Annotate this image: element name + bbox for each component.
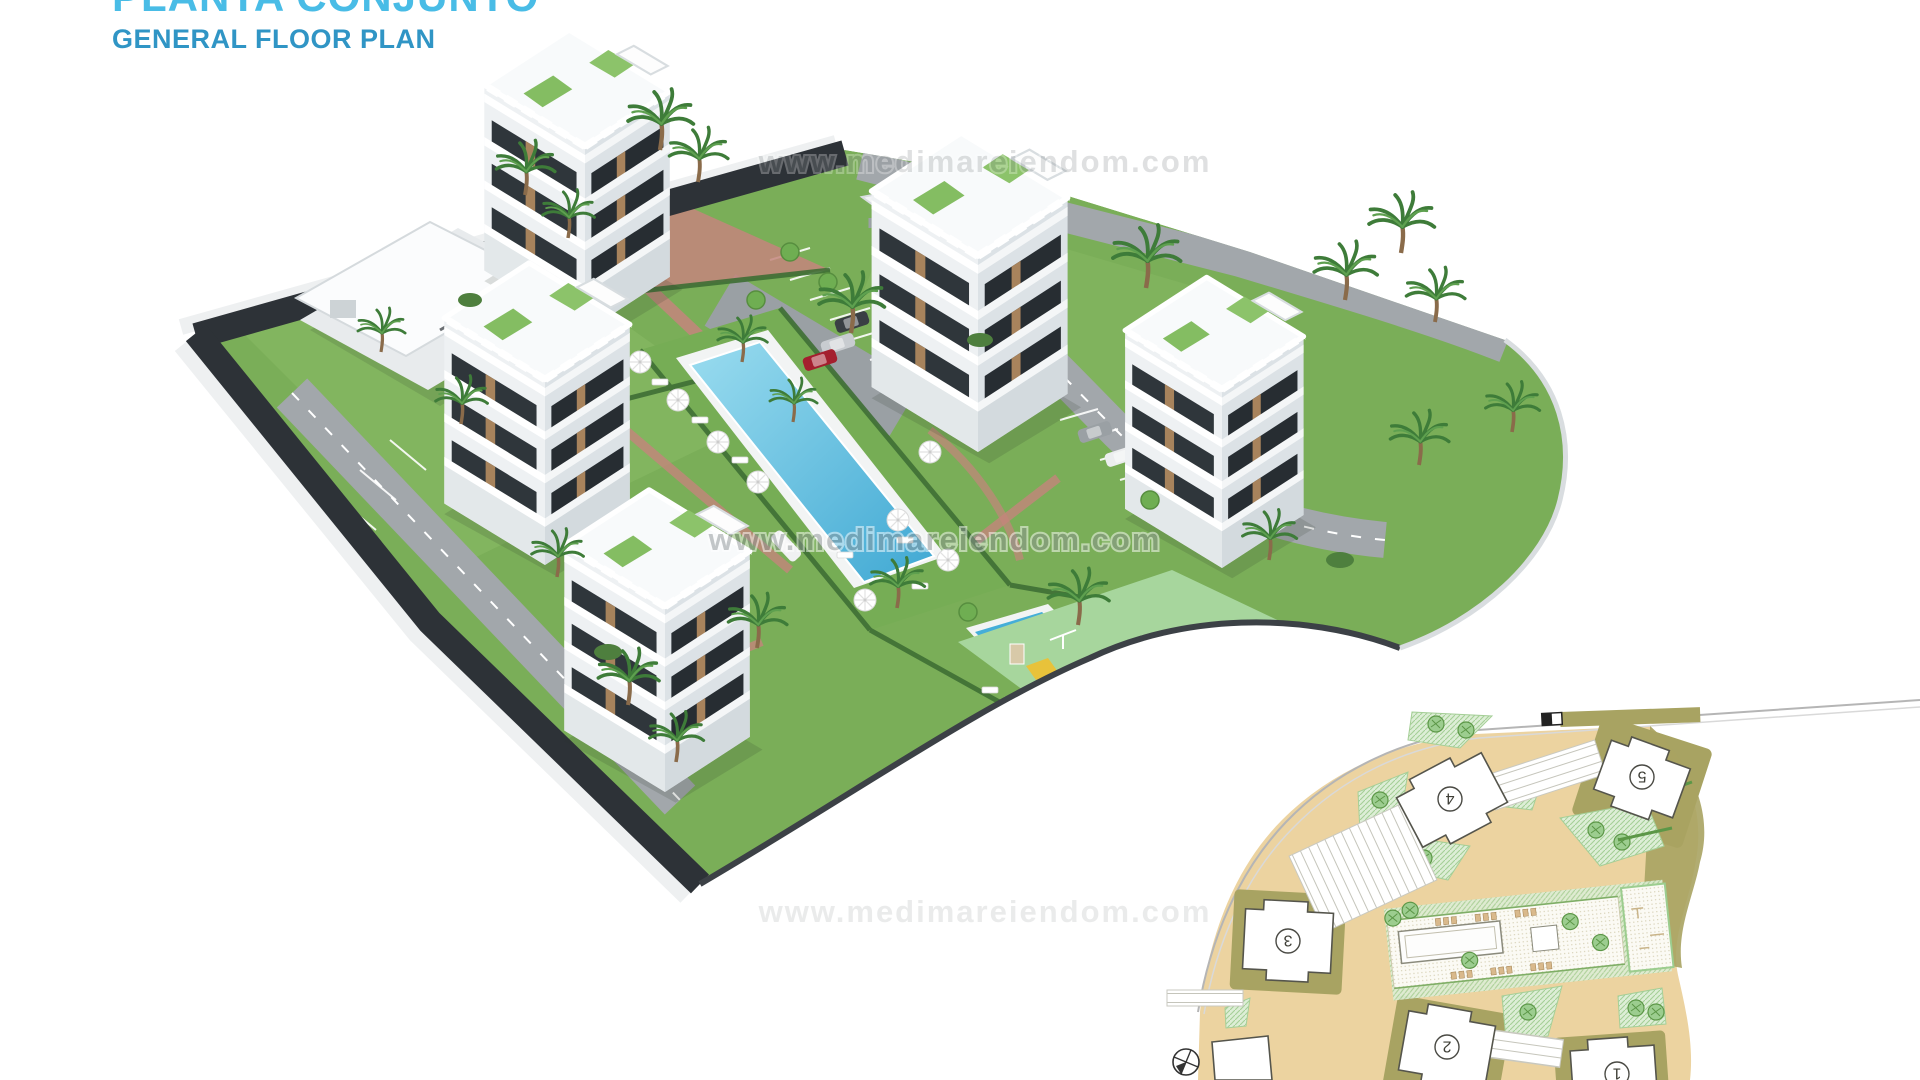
compass-icon bbox=[1173, 1049, 1199, 1075]
floor-plan-page: PLANTA CONJUNTO GENERAL FLOOR PLAN bbox=[0, 0, 1920, 1080]
page-title: PLANTA CONJUNTO GENERAL FLOOR PLAN bbox=[112, 0, 539, 53]
plan-label-1: 1 bbox=[1612, 1065, 1621, 1080]
plan-label-4: 4 bbox=[1445, 790, 1454, 807]
svg-text:www.medimareiendom.com: www.medimareiendom.com bbox=[758, 894, 1212, 929]
svg-text:www.medimareiendom.com: www.medimareiendom.com bbox=[708, 522, 1162, 557]
svg-text:www.medimareiendom.com: www.medimareiendom.com bbox=[758, 144, 1212, 179]
title-clipped: PLANTA CONJUNTO bbox=[112, 0, 539, 18]
plan-label-5: 5 bbox=[1637, 768, 1646, 785]
site-render: www.medimareiendom.com www.medimareiendo… bbox=[0, 0, 1920, 1080]
site-plan-inset: 1 2 3 4 5 bbox=[1167, 700, 1920, 1080]
entrance-gate-icon bbox=[1542, 712, 1563, 725]
plan-label-3: 3 bbox=[1283, 932, 1292, 949]
title-subtitle: GENERAL FLOOR PLAN bbox=[112, 26, 539, 53]
plan-label-2: 2 bbox=[1442, 1038, 1451, 1055]
